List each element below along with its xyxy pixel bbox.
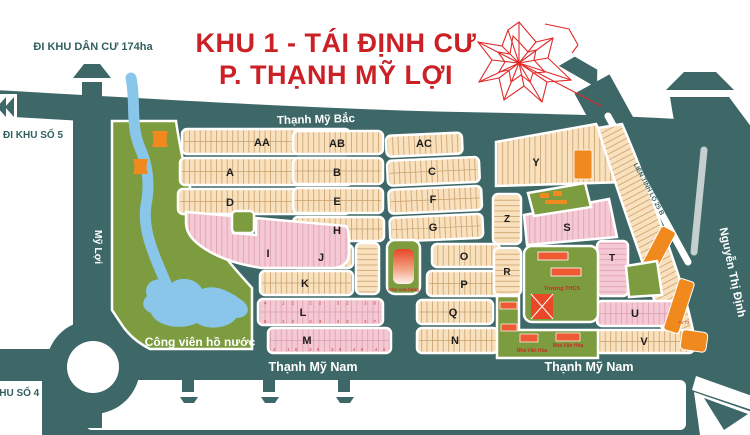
y-block-building (574, 150, 592, 179)
roundabout-center (67, 341, 119, 393)
map-title-line1: KHU 1 - TÁI ĐỊNH CƯ (196, 27, 477, 58)
road-label-thanh-my-nam-left: Thạnh Mỹ Nam (269, 360, 358, 374)
roundabout-south-stub (84, 412, 102, 428)
culture-label-2: Nhà Văn Hóa (517, 348, 548, 354)
block-Y-label: Y (532, 157, 540, 169)
school-x-building (531, 294, 553, 319)
block-Z-label: Z (504, 214, 510, 225)
block-J-label: J (318, 252, 324, 264)
school-block: Trường THCS (524, 246, 598, 322)
school-label: Trường THCS (544, 286, 581, 292)
block-P-label: P (460, 279, 467, 291)
road-label-my-loi: Mỹ Lợi (92, 230, 104, 264)
block-B-label: B (333, 167, 341, 179)
block-E-label: E (333, 196, 340, 208)
block-A-label: A (226, 167, 234, 179)
map-page: Công viên hồ nước (0, 0, 750, 435)
park-label: Công viên hồ nước (145, 335, 256, 349)
exit-label-khu5: ĐI KHU SỐ 5 (3, 127, 63, 141)
block-N-label: N (451, 335, 459, 347)
market-building (393, 249, 414, 284)
map-title-line2: P. THẠNH MỸ LỢI (219, 59, 453, 90)
block-strip (356, 243, 379, 294)
block-O-label: O (460, 251, 469, 263)
block-V-label: V (640, 336, 648, 348)
road-label-thanh-my-nam-right: Thạnh Mỹ Nam (545, 360, 634, 374)
map-title: KHU 1 - TÁI ĐỊNH CƯ P. THẠNH MỸ LỢI (196, 27, 477, 90)
lot-numbers-U-right: 75 73 (678, 320, 690, 325)
exit-label-khu4: KHU SỐ 4 (0, 385, 40, 399)
school-building (538, 252, 568, 260)
green-triangle (626, 261, 662, 297)
block-D-label: D (226, 197, 234, 209)
block-AC-label: AC (416, 138, 432, 150)
market-block: Chợ cửa hàng (387, 240, 420, 294)
road-label-thanh-my-bac: Thạnh Mỹ Bắc (277, 112, 356, 127)
block-F-label: F (430, 194, 437, 206)
exit-stub-174ha (82, 82, 102, 98)
block-R-label: R (503, 267, 511, 278)
block-T-label: T (609, 253, 615, 264)
block-S-label: S (563, 222, 570, 234)
outside-area-bottom (86, 380, 686, 430)
exit-cap-174ha-icon (73, 64, 111, 78)
roundabout-west-arm (0, 349, 55, 379)
block-K-label: K (301, 278, 309, 290)
mini-park (232, 211, 254, 233)
block-G-label: G (429, 222, 438, 234)
block-T (597, 241, 628, 296)
block-L-label: L (300, 307, 307, 319)
block-M-label: M (302, 335, 311, 347)
block-Q-label: Q (449, 307, 458, 319)
exit-cap-ntd-icon (666, 72, 734, 90)
block-H-label: H (333, 225, 341, 237)
exit-label-174ha: ĐI KHU DÂN CƯ 174ha (33, 40, 153, 53)
school-building2 (551, 268, 581, 276)
block-U-label: U (631, 308, 639, 320)
culture-label-1: Nhà Văn Hóa (553, 343, 584, 349)
map-canvas: Công viên hồ nước (0, 0, 750, 435)
market-label: Chợ cửa hàng (388, 287, 419, 292)
block-I-label: I (266, 248, 269, 260)
block-C-label: C (428, 166, 436, 178)
block-AB-label: AB (329, 138, 345, 150)
block-AA-label: AA (254, 137, 270, 149)
